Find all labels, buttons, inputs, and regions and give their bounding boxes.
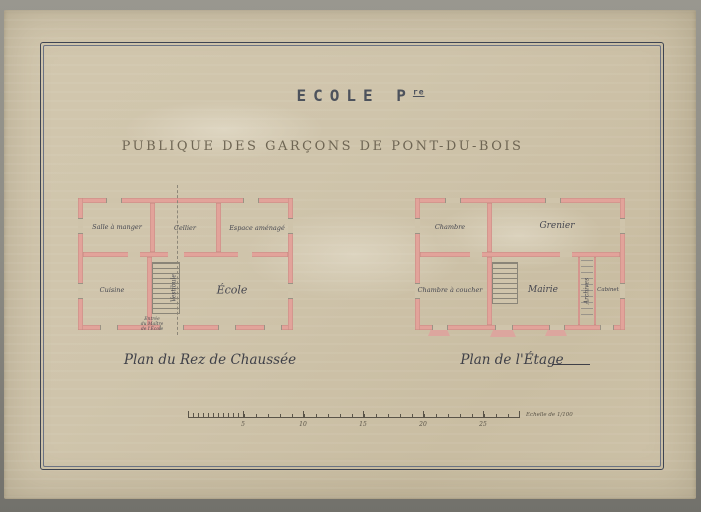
entry-note: Entrée du Maître de l'École bbox=[130, 317, 174, 332]
entry-note-line: de l'École bbox=[130, 327, 174, 332]
staircase bbox=[492, 262, 518, 304]
scale-bar-line bbox=[188, 417, 520, 418]
room-label-vestibule: Vestibule bbox=[171, 274, 178, 302]
ground-floor-plan: Salle à manger Cellier Espace aménagé Cu… bbox=[78, 198, 293, 330]
door-opening bbox=[264, 325, 282, 330]
door-opening bbox=[432, 325, 448, 330]
scale-number: 15 bbox=[359, 421, 367, 428]
drawing-title: ECOLE Pre bbox=[0, 86, 701, 105]
window-opening bbox=[243, 198, 259, 203]
wall-middle bbox=[83, 252, 288, 257]
room-label-cellier: Cellier bbox=[174, 224, 196, 232]
scale-number: 25 bbox=[479, 421, 487, 428]
partition-1 bbox=[150, 203, 155, 252]
entrance-step bbox=[428, 330, 450, 336]
scale-tick bbox=[243, 411, 244, 417]
door-opening bbox=[218, 325, 236, 330]
upper-floor-plan: Chambre Grenier Chambre à coucher Mairie… bbox=[415, 198, 625, 330]
door-opening bbox=[100, 325, 118, 330]
scale-bar-minor-ticks bbox=[244, 414, 520, 417]
window-opening bbox=[288, 218, 293, 234]
room-label-archives: Archives bbox=[584, 278, 591, 304]
room-label-salle-a-manger: Salle à manger bbox=[92, 223, 142, 231]
scale-tick bbox=[483, 411, 484, 417]
entrance-step bbox=[490, 330, 516, 337]
upper-floor-caption: Plan de l'Étage bbox=[460, 352, 563, 368]
scale-number: 5 bbox=[241, 421, 245, 428]
scale-number: 20 bbox=[419, 421, 427, 428]
window-opening bbox=[620, 283, 625, 299]
photographed-document: ECOLE Pre PUBLIQUE DES GARÇONS DE PONT-D… bbox=[0, 0, 701, 512]
window-opening bbox=[445, 198, 461, 203]
door-opening bbox=[549, 325, 565, 330]
scale-tick bbox=[188, 411, 189, 417]
room-label-grenier: Grenier bbox=[539, 221, 574, 231]
window-opening bbox=[620, 218, 625, 234]
room-label-chambre: Chambre bbox=[435, 223, 465, 231]
title-text: ECOLE P bbox=[296, 86, 412, 105]
room-label-espace-amenage: Espace aménagé bbox=[229, 224, 285, 232]
drawing-subtitle: PUBLIQUE DES GARÇONS DE PONT-DU-BOIS bbox=[0, 139, 645, 154]
window-opening bbox=[78, 218, 83, 234]
room-label-chambre-a-coucher: Chambre à coucher bbox=[418, 286, 483, 294]
scale-tick bbox=[423, 411, 424, 417]
partition-top bbox=[487, 203, 492, 252]
scale-tick bbox=[303, 411, 304, 417]
entrance-step bbox=[545, 330, 567, 336]
window-opening bbox=[415, 218, 420, 234]
room-label-ecole: École bbox=[217, 284, 248, 297]
scale-tick bbox=[363, 411, 364, 417]
caption-flourish bbox=[552, 364, 590, 365]
scale-tick bbox=[519, 411, 520, 417]
window-opening bbox=[106, 198, 122, 203]
door-opening bbox=[168, 252, 184, 257]
door-opening bbox=[560, 252, 572, 257]
partition-archives-left bbox=[578, 257, 580, 325]
door-opening bbox=[238, 252, 252, 257]
door-opening bbox=[470, 252, 482, 257]
window-opening bbox=[78, 283, 83, 299]
partition-2 bbox=[216, 203, 221, 252]
window-opening bbox=[545, 198, 561, 203]
room-label-cabinet: Cabinet bbox=[597, 287, 619, 293]
axis-dashed-line bbox=[177, 185, 178, 335]
window-opening bbox=[288, 283, 293, 299]
door-opening bbox=[600, 325, 614, 330]
wall-middle bbox=[420, 252, 620, 257]
door-opening bbox=[128, 252, 140, 257]
room-label-mairie: Mairie bbox=[528, 285, 558, 295]
ground-floor-caption: Plan du Rez de Chaussée bbox=[124, 352, 296, 368]
partition-archives-right bbox=[594, 257, 596, 325]
room-label-cuisine: Cuisine bbox=[100, 286, 125, 294]
title-superscript: re bbox=[413, 88, 425, 97]
scale-bar-subdivisions bbox=[188, 413, 244, 417]
scale-caption: Echelle de 1/100 bbox=[526, 412, 573, 418]
scale-number: 10 bbox=[299, 421, 307, 428]
door-opening bbox=[495, 325, 513, 330]
